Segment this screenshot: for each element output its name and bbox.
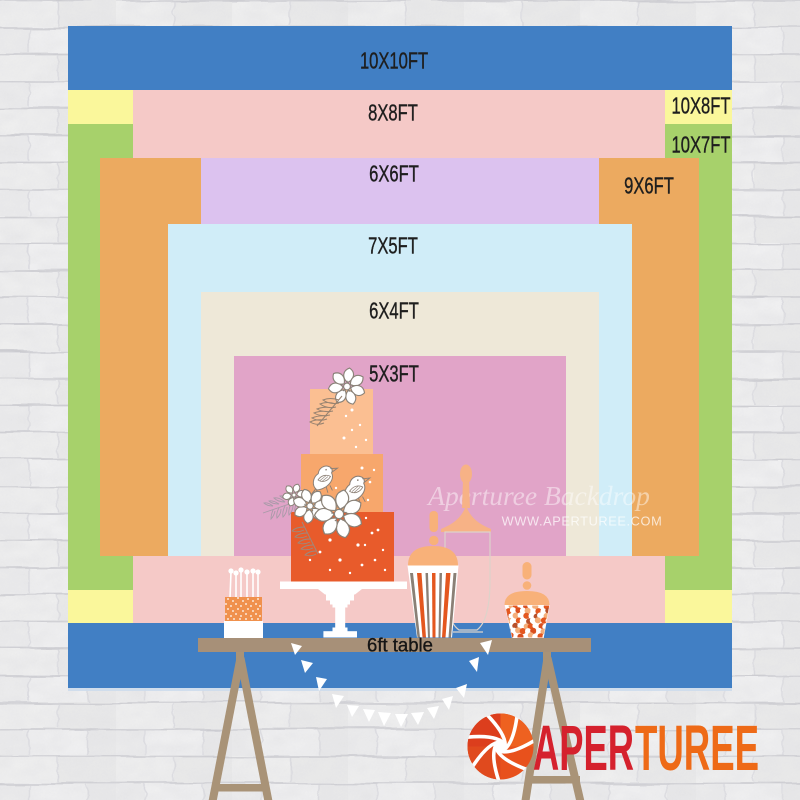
svg-text:APERTUREE: APERTUREE (533, 712, 759, 784)
svg-text:6ft table: 6ft table (367, 636, 433, 657)
